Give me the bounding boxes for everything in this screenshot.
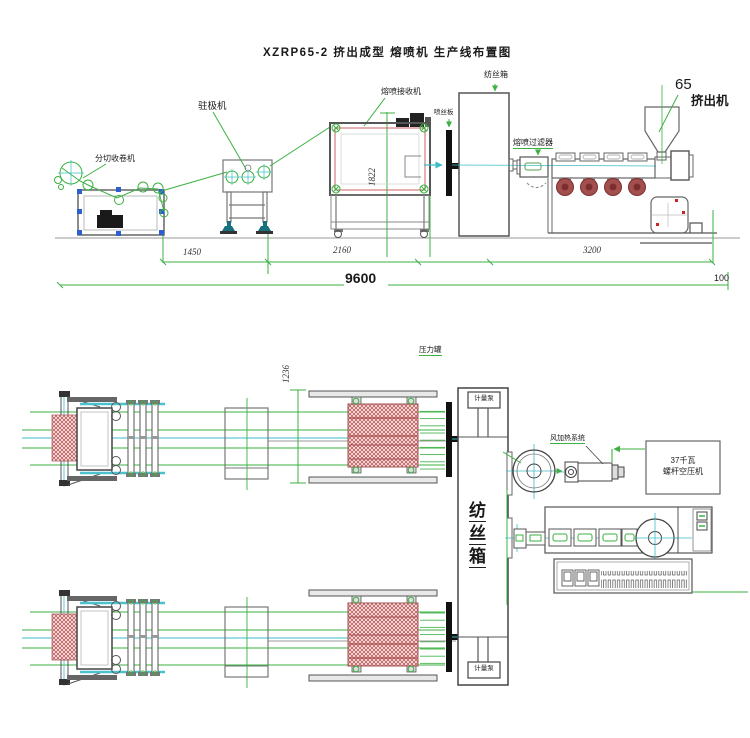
label-spinning-box-side: 纺丝箱: [484, 71, 508, 79]
label-extruder: 挤出机: [691, 95, 729, 108]
spinning-box-char-3: 箱: [469, 548, 486, 568]
dim-9600: 9600: [345, 271, 376, 286]
label-pressure-tank: 压力罐: [419, 346, 442, 356]
air-heater-plan: [560, 446, 645, 482]
dim-3200: 3200: [583, 246, 601, 255]
label-metering-pump-top: 计量泵: [468, 396, 500, 403]
label-compressor: 37千瓦 螺杆空压机: [647, 455, 719, 477]
extruder-side: [548, 85, 702, 233]
production-line-art: [0, 0, 750, 738]
label-slitting-winder: 分切收卷机: [95, 155, 135, 163]
electret-machine-side: [213, 112, 330, 234]
dim-1236: 1236: [282, 365, 291, 383]
spinning-box-char-1: 纺: [469, 502, 486, 522]
spinning-box-char-2: 丝: [469, 525, 486, 545]
winder-plan-top: [52, 391, 268, 490]
control-cabinet-plan: [554, 559, 748, 593]
label-air-heating-system: 风加热系统: [550, 435, 585, 444]
label-meltblown-receiver: 熔喷接收机: [381, 88, 421, 96]
spinneret-and-spinning-box-side: [424, 84, 509, 236]
diagram-title: XZRP65-2 挤出成型 熔喷机 生产线布置图: [263, 47, 512, 59]
ground-and-dimension-lines: [55, 112, 740, 290]
label-metering-pump-bottom: 计量泵: [468, 666, 500, 673]
dim-1822: 1822: [368, 168, 377, 186]
winder-plan-bottom: [52, 590, 268, 688]
slitting-winder-side: [55, 160, 228, 236]
label-spinneret-plate: 喷丝板: [434, 110, 454, 117]
diagram-canvas: XZRP65-2 挤出成型 熔喷机 生产线布置图 分切收卷机 驻极机 熔喷接收机…: [0, 0, 750, 738]
label-meltblown-filter: 熔喷过滤器: [513, 139, 553, 149]
dim-2160: 2160: [333, 246, 351, 255]
dim-1450: 1450: [183, 248, 201, 257]
compressor-line-2: 螺杆空压机: [647, 466, 719, 477]
label-extruder-size: 65: [675, 77, 692, 93]
label-electret-machine: 驻极机: [198, 102, 227, 112]
compressor-line-1: 37千瓦: [647, 455, 719, 466]
label-spinning-box-plan: 纺 丝 箱: [469, 502, 486, 571]
extruder-plan: [505, 507, 712, 563]
meltblown-filter-piping-side: [452, 150, 656, 188]
meltblown-receiver-side: [330, 98, 431, 238]
dim-100: 100: [714, 274, 729, 283]
